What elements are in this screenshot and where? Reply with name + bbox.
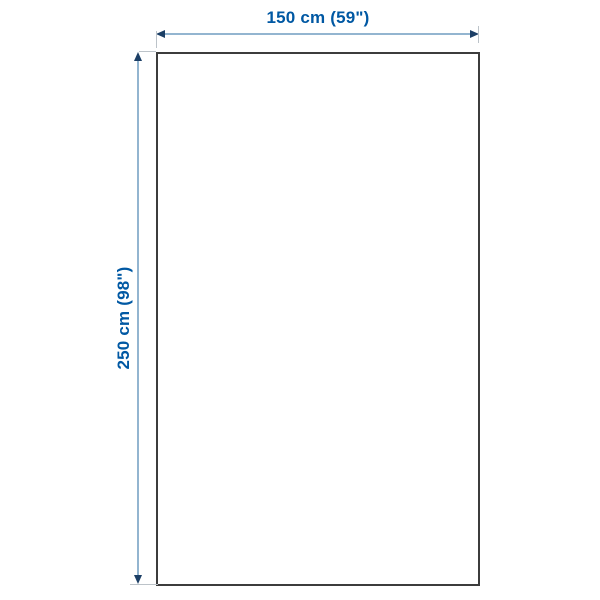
- arrowhead-left-icon: [156, 30, 165, 38]
- width-dimension-line: [163, 33, 471, 35]
- height-dimension-line: [137, 59, 139, 577]
- width-dimension-label: 150 cm (59"): [157, 8, 479, 28]
- product-outline: [156, 52, 480, 586]
- extension-tick-top-left: [156, 31, 157, 48]
- extension-tick-left-top: [139, 51, 156, 52]
- arrowhead-down-icon: [134, 575, 142, 584]
- extension-tick-top-right: [478, 26, 479, 43]
- arrowhead-up-icon: [134, 52, 142, 61]
- extension-tick-left-bottom: [130, 584, 158, 585]
- height-dimension-label: 250 cm (98"): [114, 168, 134, 468]
- product-dimension-diagram: 150 cm (59") 250 cm (98"): [0, 0, 600, 600]
